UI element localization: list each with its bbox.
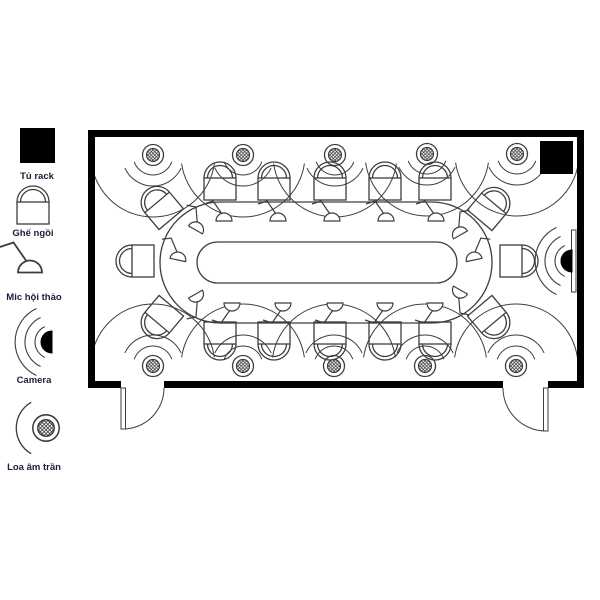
conference-mic xyxy=(204,201,232,221)
rack-cabinet xyxy=(540,141,573,174)
wall-bottom-segment xyxy=(164,381,503,388)
chair xyxy=(419,322,451,360)
ceiling-speaker xyxy=(182,145,305,217)
conference-mic xyxy=(462,236,494,261)
conference-room-plan-page: Tủ rack Ghế ngồi Mic hội thảo Camera Loa… xyxy=(0,0,600,600)
door-swing-arc xyxy=(503,388,546,431)
conference-room-floor-plan: Tủ rack Ghế ngồi Mic hội thảo Camera Loa… xyxy=(0,0,600,600)
legend-mic-icon xyxy=(0,243,42,273)
conference-mic xyxy=(158,236,190,261)
conference-mic xyxy=(312,201,340,221)
legend-chair-label: Ghế ngồi xyxy=(12,228,53,239)
chair xyxy=(369,322,401,360)
chair xyxy=(314,322,346,360)
ceiling-speaker xyxy=(182,304,305,376)
rack-cabinet-box xyxy=(540,141,573,174)
conference-mic xyxy=(444,286,478,317)
chair xyxy=(500,245,538,277)
chairs xyxy=(116,162,538,360)
conference-mic xyxy=(178,203,212,234)
legend-rack-label: Tủ rack xyxy=(20,171,55,182)
legend-rack-icon xyxy=(20,128,55,163)
table-inner-edge xyxy=(197,242,457,283)
legend-speaker-label: Loa âm trần xyxy=(7,462,61,473)
wall-bottom-segment xyxy=(88,381,121,388)
legend: Tủ rack Ghế ngồi Mic hội thảo Camera Loa… xyxy=(0,128,62,473)
conference-mic xyxy=(263,303,291,323)
wall-right xyxy=(577,130,584,388)
legend-chair-icon xyxy=(17,186,49,224)
wall-bottom-segment xyxy=(548,381,584,388)
ceiling-speaker xyxy=(455,304,578,376)
conference-mic xyxy=(365,303,393,323)
conference-mic xyxy=(212,303,240,323)
wall-left xyxy=(88,130,95,388)
ceiling-speaker xyxy=(273,304,396,376)
chair xyxy=(204,162,236,200)
legend-camera-label: Camera xyxy=(17,375,53,386)
door-swing-arc xyxy=(123,388,164,429)
ceiling-speaker xyxy=(366,144,489,216)
room-walls xyxy=(88,130,584,388)
room-interior xyxy=(92,141,579,377)
chair xyxy=(419,162,451,200)
camera-and-display xyxy=(535,228,576,295)
door-leaf[interactable] xyxy=(121,388,126,429)
conference-mic xyxy=(416,201,444,221)
door-leaf[interactable] xyxy=(544,388,549,431)
wall-camera xyxy=(535,228,572,295)
wall-top xyxy=(88,130,584,137)
legend-mic-label: Mic hội thảo xyxy=(6,292,62,303)
legend-speaker-icon xyxy=(16,402,59,453)
chair xyxy=(204,322,236,360)
legend-camera-icon xyxy=(15,309,52,376)
chair xyxy=(467,181,516,231)
conference-mic xyxy=(415,303,443,323)
chair xyxy=(116,245,154,277)
doors xyxy=(121,388,548,431)
